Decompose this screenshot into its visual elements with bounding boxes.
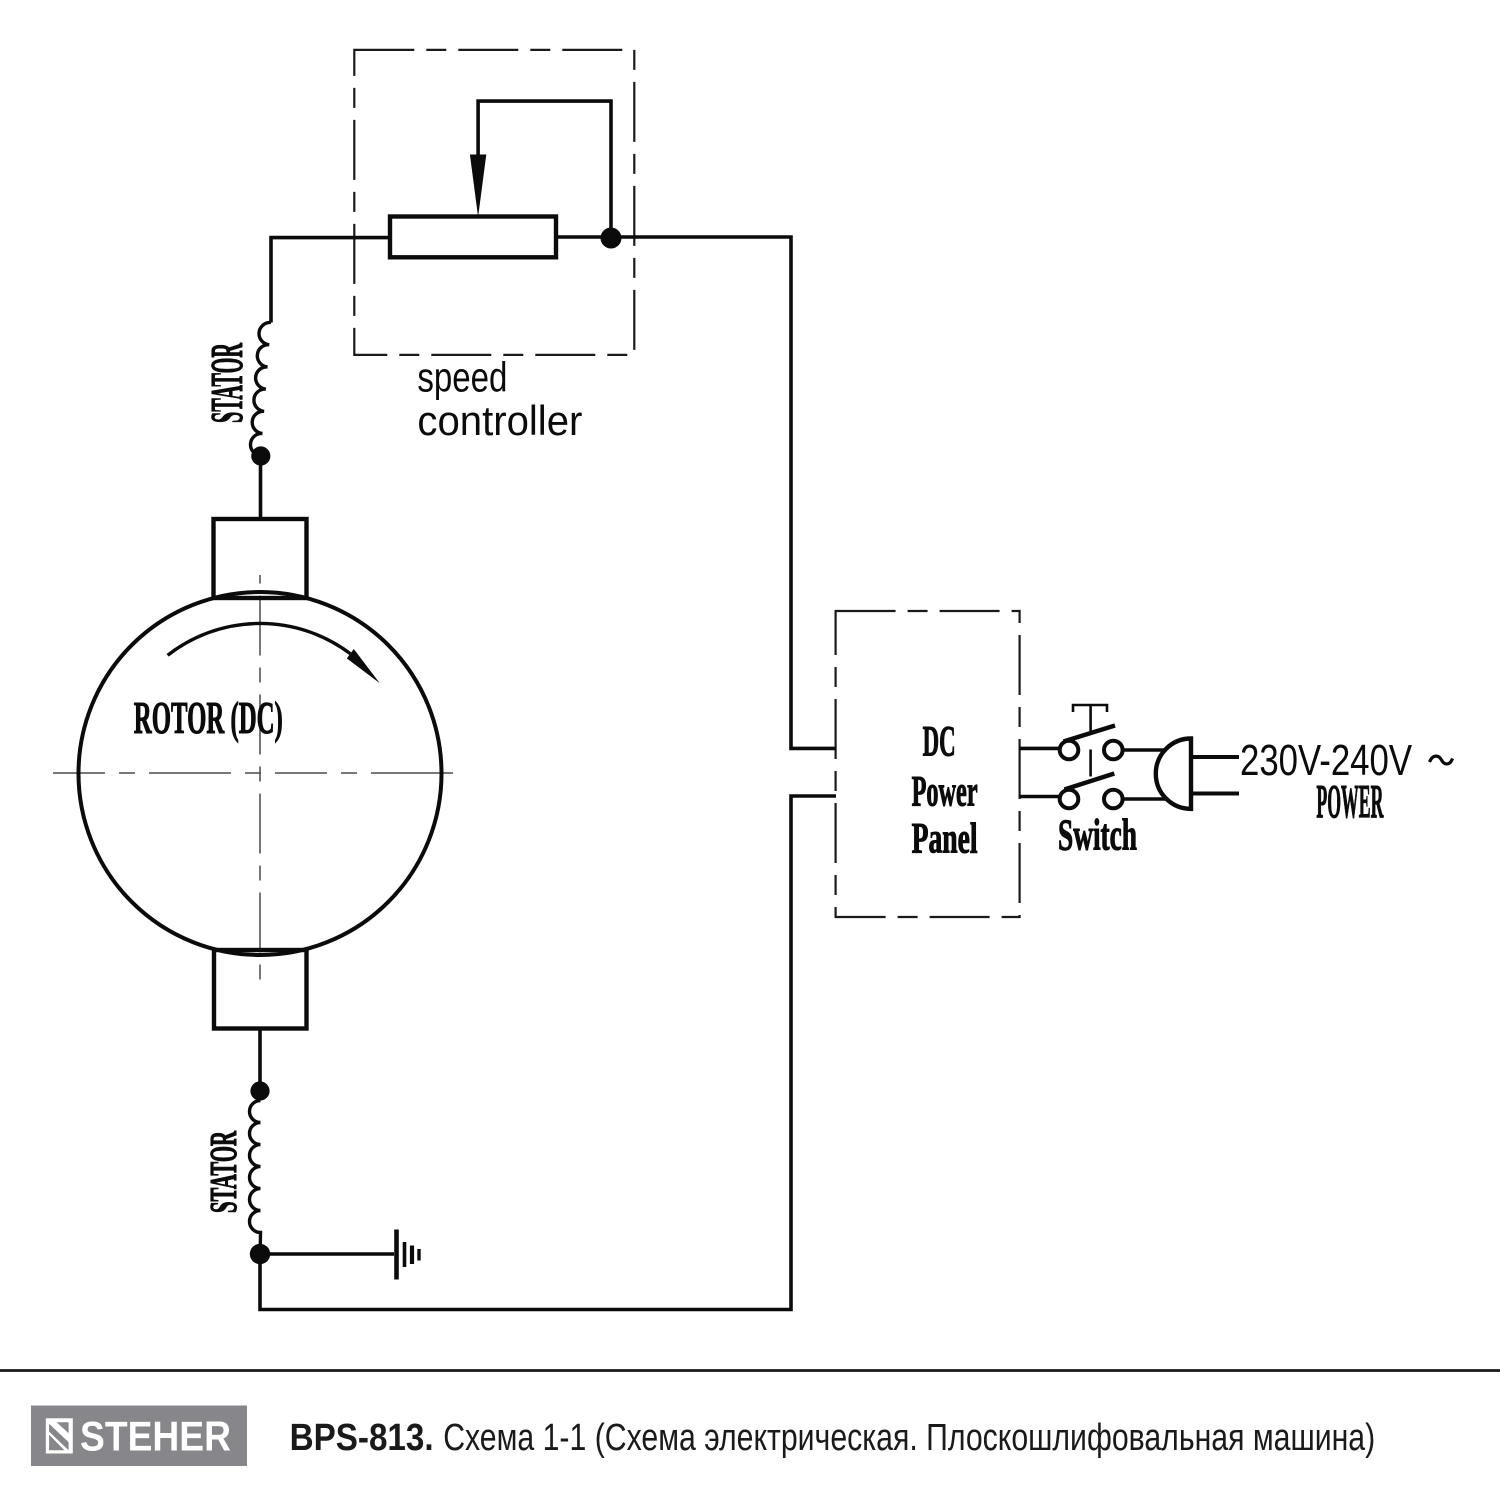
svg-text:Схема 1-1 (Схема электрическая: Схема 1-1 (Схема электрическая. Плоскошл…: [443, 1417, 1375, 1459]
svg-text:Power: Power: [912, 769, 978, 816]
svg-text:POWER: POWER: [1316, 776, 1383, 829]
svg-text:STATOR: STATOR: [201, 343, 252, 423]
svg-text:DC: DC: [923, 719, 956, 766]
svg-text:STATOR: STATOR: [203, 1131, 245, 1213]
svg-text:controller: controller: [417, 397, 582, 444]
svg-text:Panel: Panel: [912, 816, 978, 863]
svg-text:STEHER: STEHER: [80, 1413, 231, 1460]
svg-text:Switch: Switch: [1058, 810, 1137, 859]
svg-text:speed: speed: [417, 354, 507, 401]
svg-text:BPS-813.: BPS-813.: [290, 1417, 434, 1459]
svg-text:ROTOR (DC): ROTOR (DC): [134, 692, 283, 743]
